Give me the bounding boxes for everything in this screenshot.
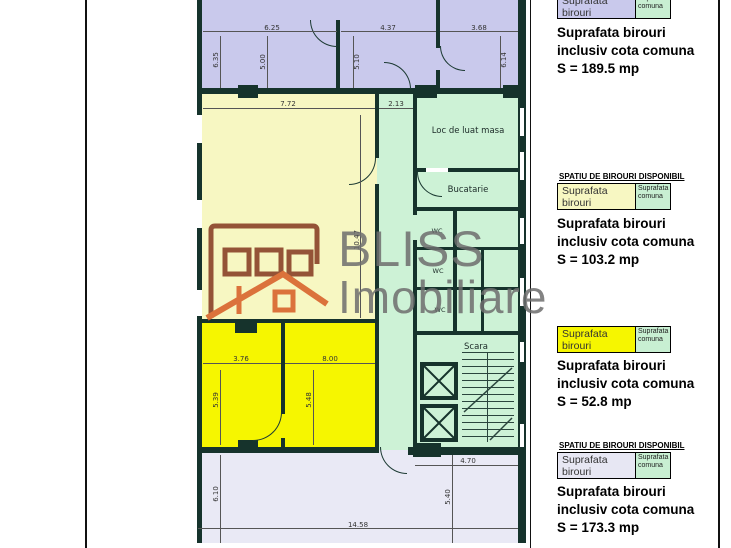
dim-5-39: 5.39 — [212, 392, 220, 408]
elevator-shaft-1 — [420, 362, 458, 400]
legend-line1: Suprafata birouri — [557, 483, 694, 501]
dim-line — [360, 115, 361, 318]
legend-swatch-common-4: Suprafata comuna — [636, 452, 671, 479]
dim-line — [379, 108, 413, 109]
legend-text-3: Suprafata birouri inclusiv cota comuna S… — [557, 357, 694, 411]
swatch-label: comuna — [638, 462, 663, 469]
window — [520, 218, 524, 244]
legend-line1: Suprafata birouri — [557, 215, 694, 233]
dim-6-35: 6.35 — [212, 52, 220, 68]
legend-swatch-common-1: Suprafata comuna — [636, 0, 671, 19]
legend-line1: Suprafata birouri — [557, 24, 694, 42]
swatch-label: comuna — [638, 193, 663, 200]
column — [503, 85, 518, 98]
column — [413, 443, 441, 457]
legend-area: S = 173.3 mp — [557, 519, 694, 537]
dim-line — [415, 465, 518, 466]
staircase — [462, 352, 514, 442]
dim-4-70: 4.70 — [460, 457, 476, 465]
legend-swatch-common-3: Suprafata comuna — [636, 326, 671, 353]
dim-6-10: 6.10 — [212, 486, 220, 502]
window — [520, 342, 524, 362]
legend-text-4: Suprafata birouri inclusiv cota comuna S… — [557, 483, 694, 537]
dim-line — [313, 370, 314, 445]
dim-7-72: 7.72 — [280, 100, 296, 108]
window — [520, 108, 524, 136]
swatch-label: Suprafata — [638, 454, 668, 461]
wall-wc-h1 — [417, 247, 518, 250]
swatch-label: comuna — [638, 336, 663, 343]
legend-text-2: Suprafata birouri inclusiv cota comuna S… — [557, 215, 694, 269]
legend-available-heading: SPATIU DE BIROURI DISPONIBIL — [559, 172, 685, 181]
dim-5-10: 5.10 — [353, 54, 361, 70]
wall-corridor-right-a — [413, 91, 417, 215]
wall-yellow-divider — [281, 322, 285, 414]
legend-line1: Suprafata birouri — [557, 357, 694, 375]
wall-corridor-right-b — [413, 240, 417, 455]
column — [415, 85, 437, 98]
dim-3-76: 3.76 — [233, 355, 249, 363]
dim-5-40: 5.40 — [444, 489, 452, 505]
dim-line — [220, 370, 221, 445]
wall-corridor-left-b — [375, 184, 379, 450]
legend-swatch-office-1: Suprafata birouri — [557, 0, 636, 19]
region-offices-purple — [202, 0, 518, 91]
room-label-wc: WC — [435, 306, 446, 314]
window — [520, 424, 524, 448]
legend-swatch-office-2: Suprafata birouri — [557, 183, 636, 210]
legend-area: S = 189.5 mp — [557, 60, 694, 78]
region-offices-pale-yellow — [202, 91, 377, 322]
legend-swatch-office-3: Suprafata birouri — [557, 326, 636, 353]
wall-wc-h2 — [417, 287, 518, 290]
window — [197, 200, 202, 228]
swatch-label: Suprafata — [638, 0, 668, 2]
wall-kitchen-bottom — [417, 207, 518, 211]
room-label-stairs: Scara — [464, 342, 488, 352]
legend-swatch-office-4: Suprafata birouri — [557, 452, 636, 479]
elevator-shaft-2 — [420, 404, 458, 442]
room-label-dining: Loc de luat masa — [432, 126, 505, 136]
dim-14-58: 14.58 — [348, 521, 368, 529]
dim-line — [267, 36, 268, 88]
dim-line — [452, 455, 453, 543]
legend-line2: inclusiv cota comuna — [557, 375, 694, 393]
dim-line — [220, 36, 221, 88]
wall-purple-room2a — [436, 0, 440, 48]
swatch-label: birouri — [562, 7, 591, 19]
dim-line — [285, 363, 375, 364]
window — [520, 152, 524, 180]
wall-wc-v1 — [453, 211, 457, 331]
wall-wc-v2 — [481, 250, 484, 331]
floorplan: Loc de luat masa Bucatarie WC WC WC Scar… — [0, 0, 548, 548]
dim-6-25: 6.25 — [264, 24, 280, 32]
swatch-label: birouri — [562, 340, 591, 352]
legend-area: S = 103.2 mp — [557, 251, 694, 269]
swatch-label: Suprafata — [562, 185, 608, 197]
legend-text-1: Suprafata birouri inclusiv cota comuna S… — [557, 24, 694, 78]
region-offices-bright-yellow — [202, 322, 377, 450]
floorplan-page: Loc de luat masa Bucatarie WC WC WC Scar… — [0, 0, 731, 548]
wall-outer-right — [518, 0, 526, 543]
dim-line — [203, 363, 281, 364]
room-label-wc: WC — [433, 267, 444, 275]
legend-line2: inclusiv cota comuna — [557, 233, 694, 251]
dim-2-13: 2.13 — [388, 100, 404, 108]
dim-8-00: 8.00 — [322, 355, 338, 363]
window — [520, 278, 524, 306]
dim-6-14: 6.14 — [500, 52, 508, 68]
room-label-kitchen: Bucatarie — [448, 185, 489, 195]
column — [238, 85, 258, 98]
swatch-label: Suprafata — [562, 0, 608, 7]
legend-swatch-common-2: Suprafata comuna — [636, 183, 671, 210]
wall-corridor-left-a — [375, 91, 379, 158]
wall-stairs-top — [417, 331, 518, 335]
window — [197, 115, 202, 143]
legend-area: S = 52.8 mp — [557, 393, 694, 411]
swatch-label: Suprafata — [638, 328, 668, 335]
swatch-label: Suprafata — [562, 454, 608, 466]
wall-yellow-bottom — [197, 447, 379, 453]
column — [235, 320, 257, 333]
dim-line — [203, 108, 375, 109]
wall-outer-left — [197, 0, 202, 543]
swatch-label: birouri — [562, 197, 591, 209]
swatch-label: comuna — [638, 3, 663, 10]
dim-4-37: 4.37 — [380, 24, 396, 32]
legend-available-heading: SPATIU DE BIROURI DISPONIBIL — [559, 441, 685, 450]
wall-yellow-top — [197, 319, 377, 323]
legend-line2: inclusiv cota comuna — [557, 42, 694, 60]
swatch-label: Suprafata — [562, 328, 608, 340]
dim-3-68: 3.68 — [471, 24, 487, 32]
dim-10-47: 10.47 — [353, 230, 361, 250]
window — [197, 290, 202, 316]
swatch-label: Suprafata — [638, 185, 668, 192]
dim-5-00: 5.00 — [259, 54, 267, 70]
legend-line2: inclusiv cota comuna — [557, 501, 694, 519]
dim-line — [220, 455, 221, 543]
swatch-label: birouri — [562, 466, 591, 478]
room-label-wc: WC — [432, 227, 443, 235]
dim-5-48: 5.48 — [305, 392, 313, 408]
legend: Suprafata birouri Suprafata comuna Supra… — [540, 0, 731, 548]
